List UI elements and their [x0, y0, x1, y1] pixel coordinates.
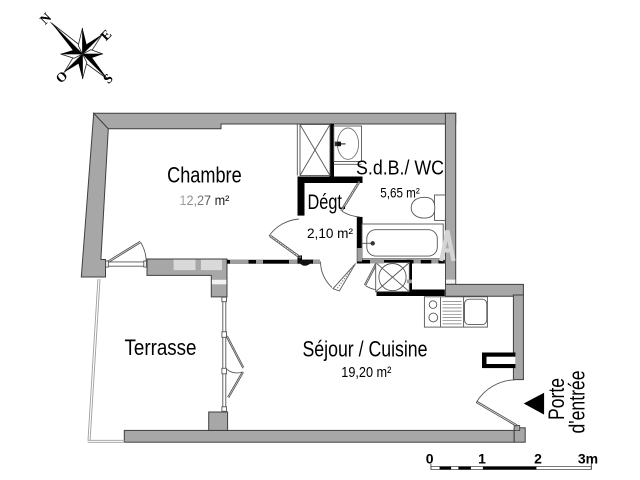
svg-text:1: 1 — [478, 451, 486, 467]
svg-text:d'entrée: d'entrée — [565, 371, 590, 434]
svg-text:2: 2 — [534, 451, 542, 467]
svg-text:Dégt.: Dégt. — [308, 191, 347, 214]
svg-text:Séjour / Cuisine: Séjour / Cuisine — [303, 337, 428, 362]
svg-text:12,27 m²: 12,27 m² — [179, 192, 229, 208]
svg-text:Terrasse: Terrasse — [125, 335, 197, 360]
svg-text:5,65 m²: 5,65 m² — [380, 185, 420, 201]
svg-text:Chambre: Chambre — [167, 163, 242, 188]
svg-text:S.d.B./ WC: S.d.B./ WC — [356, 158, 444, 180]
svg-text:2,10 m²: 2,10 m² — [307, 225, 353, 241]
svg-text:19,20 m²: 19,20 m² — [341, 364, 391, 381]
svg-text:3m: 3m — [578, 451, 598, 467]
svg-text:0: 0 — [426, 451, 434, 467]
